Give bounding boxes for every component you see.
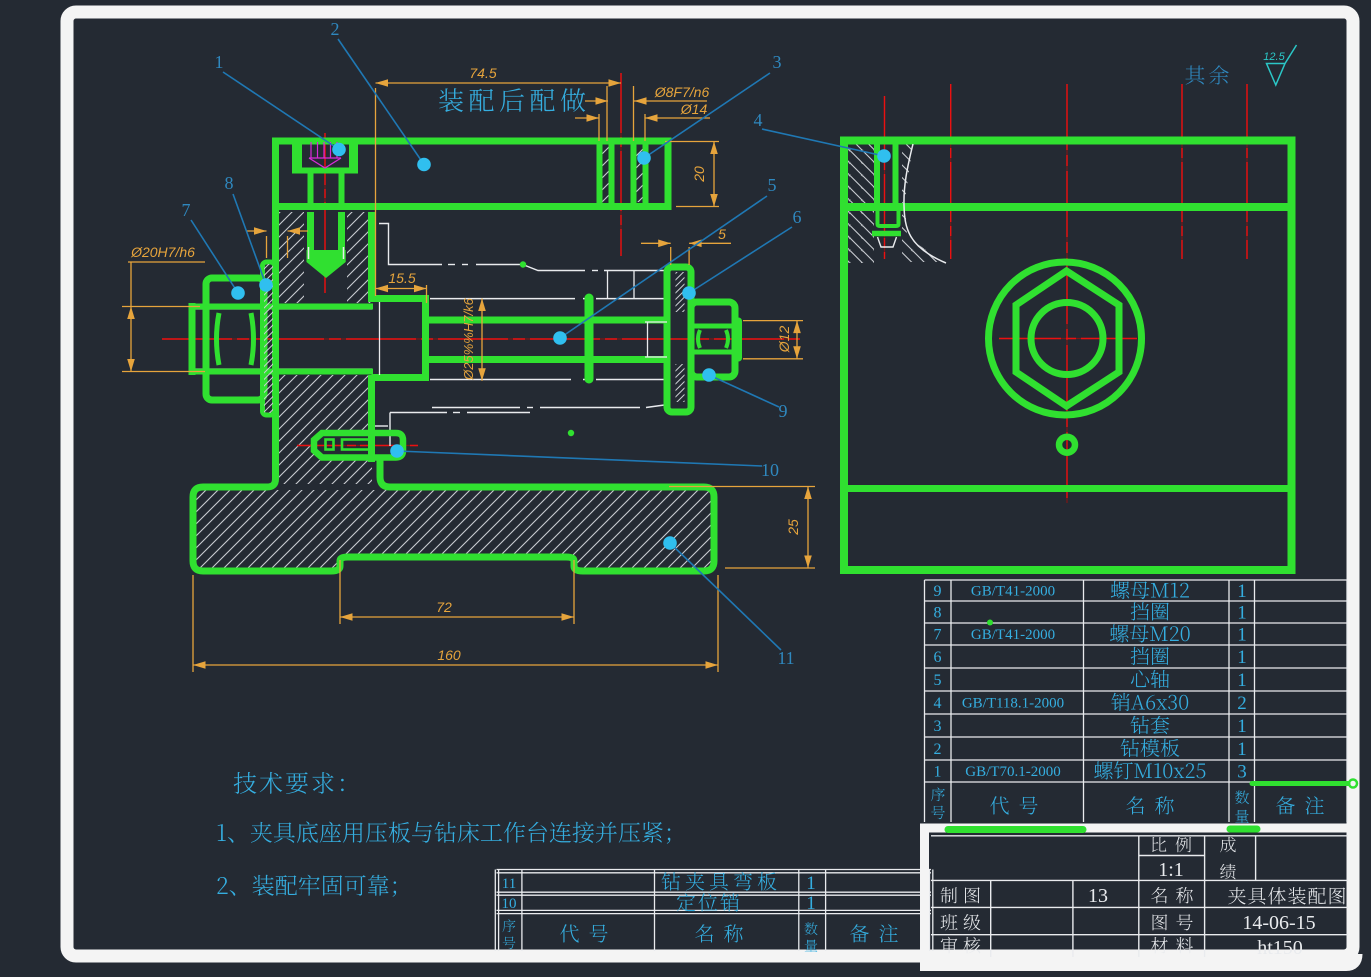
svg-text:12.5: 12.5 [1263, 51, 1285, 63]
svg-text:1: 1 [1237, 603, 1247, 624]
svg-text:4: 4 [754, 110, 763, 130]
svg-text:5: 5 [934, 672, 942, 689]
svg-text:1: 1 [1237, 739, 1247, 760]
svg-text:1: 1 [215, 52, 224, 72]
svg-text:6: 6 [793, 207, 802, 227]
svg-text:5: 5 [768, 175, 777, 195]
svg-text:9: 9 [779, 401, 788, 421]
svg-text:6: 6 [934, 649, 942, 666]
svg-text:2: 2 [1237, 693, 1247, 714]
svg-text:20: 20 [691, 166, 707, 183]
svg-text:7: 7 [934, 627, 942, 644]
svg-text:2: 2 [934, 741, 942, 758]
svg-text:15.5: 15.5 [388, 270, 415, 286]
svg-text:GB/T41-2000: GB/T41-2000 [971, 584, 1055, 600]
svg-text:1:1: 1:1 [1158, 859, 1184, 881]
svg-text:GB/T118.1-2000: GB/T118.1-2000 [962, 696, 1064, 712]
svg-text:1: 1 [1237, 716, 1247, 737]
svg-text:7: 7 [182, 200, 191, 220]
svg-text:GB/T41-2000: GB/T41-2000 [971, 627, 1055, 643]
svg-text:1: 1 [934, 764, 942, 781]
svg-text:1: 1 [1237, 581, 1247, 602]
svg-text:13: 13 [1088, 885, 1108, 907]
svg-text:3: 3 [1237, 762, 1247, 783]
svg-text:4: 4 [934, 695, 942, 712]
svg-text:1: 1 [806, 873, 816, 894]
svg-text:3: 3 [934, 718, 942, 735]
svg-text:Ø12: Ø12 [776, 326, 792, 354]
svg-text:Ø20H7/h6: Ø20H7/h6 [130, 244, 195, 260]
svg-text:8: 8 [934, 605, 942, 622]
svg-text:Ø8F7/n6: Ø8F7/n6 [654, 84, 710, 100]
svg-text:11: 11 [502, 876, 516, 892]
svg-text:Ø14: Ø14 [680, 101, 708, 117]
svg-text:11: 11 [777, 648, 794, 668]
svg-text:1: 1 [806, 893, 816, 914]
svg-text:10: 10 [502, 896, 517, 912]
svg-text:72: 72 [436, 599, 452, 615]
svg-text:74.5: 74.5 [469, 65, 496, 81]
svg-text:2: 2 [331, 19, 340, 39]
svg-text:10: 10 [761, 460, 779, 480]
svg-text:GB/T70.1-2000: GB/T70.1-2000 [965, 764, 1060, 780]
svg-text:1: 1 [1237, 670, 1247, 691]
svg-text:Ø25%%H7/k6: Ø25%%H7/k6 [461, 297, 476, 380]
svg-text:ht150: ht150 [1257, 937, 1303, 959]
svg-text:1: 1 [1237, 625, 1247, 646]
svg-text:14-06-15: 14-06-15 [1242, 912, 1315, 934]
svg-text:25: 25 [785, 519, 801, 536]
svg-text:9: 9 [934, 583, 942, 600]
svg-text:3: 3 [773, 52, 782, 72]
svg-text:160: 160 [437, 647, 461, 663]
svg-text:1: 1 [1237, 647, 1247, 668]
svg-text:8: 8 [225, 173, 234, 193]
